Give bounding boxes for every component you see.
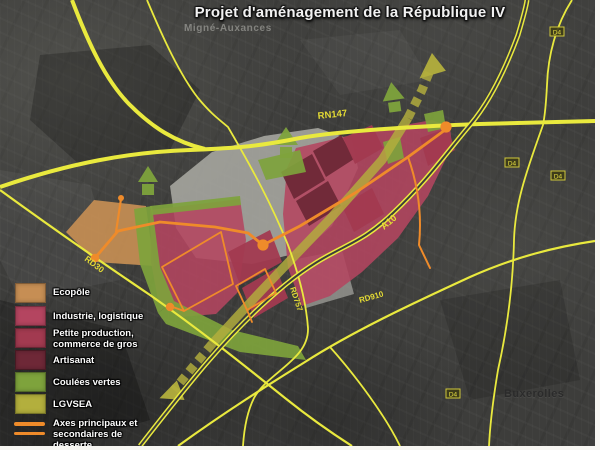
legend-label-petite-production-2: commerce de gros [53, 339, 137, 350]
legend-label-industrie: Industrie, logistique [53, 311, 143, 322]
svg-text:D4: D4 [554, 174, 563, 181]
legend-swatch-artisanat [15, 350, 46, 370]
legend-label-lgvsea: LGVSEA [53, 399, 92, 410]
road-branch-south [330, 347, 400, 446]
legend-swatch-lgvsea [15, 394, 46, 414]
map-title: Projet d'aménagement de la République IV [150, 4, 550, 21]
axis-node [118, 195, 124, 201]
legend-label-artisanat: Artisanat [53, 355, 94, 366]
svg-text:D4: D4 [508, 161, 517, 168]
legend-swatch-coulees-vertes [15, 372, 46, 392]
svg-text:D4: D4 [449, 392, 458, 399]
road-shield: D4 [446, 389, 460, 399]
axis-node [257, 239, 268, 250]
legend-axis-line-secondary [14, 432, 45, 435]
legend-axis-line-main [14, 422, 45, 426]
road-shield: D4 [505, 158, 519, 168]
label-rd910: RD910 [358, 289, 385, 305]
legend-swatch-ecopole [15, 283, 46, 303]
green-arrow-icon [138, 166, 158, 195]
road-shield: D4 [550, 27, 564, 37]
legend-label-petite-production-1: Petite production, [53, 328, 134, 339]
field-patch [300, 30, 430, 95]
forest-patch [30, 45, 200, 165]
label-rn147: RN147 [317, 108, 348, 122]
scan-margin-bottom [0, 446, 600, 450]
aerial-map: RN147 A10 RD30 RD757 RD910 D4 D4 D4 [0, 0, 595, 446]
axis-node [166, 303, 174, 311]
legend-label-coulees-vertes: Coulées vertes [53, 377, 121, 388]
legend-label-axes-1: Axes principaux et [53, 418, 137, 429]
legend-swatch-petite-production [15, 328, 46, 348]
place-label-buxerolles: Buxerolles [504, 388, 564, 400]
axis-node [440, 121, 451, 132]
place-label-migne-auxances: Migné-Auxances [184, 23, 272, 34]
scanned-map-page: RN147 A10 RD30 RD757 RD910 D4 D4 D4 [0, 0, 600, 450]
legend-label-ecopole: Ecopôle [53, 287, 90, 298]
svg-text:D4: D4 [553, 30, 562, 37]
legend-label-axes-2: secondaires de [53, 429, 122, 440]
road-shield: D4 [551, 171, 565, 181]
legend-swatch-industrie [15, 306, 46, 326]
scan-margin-right [595, 0, 600, 450]
